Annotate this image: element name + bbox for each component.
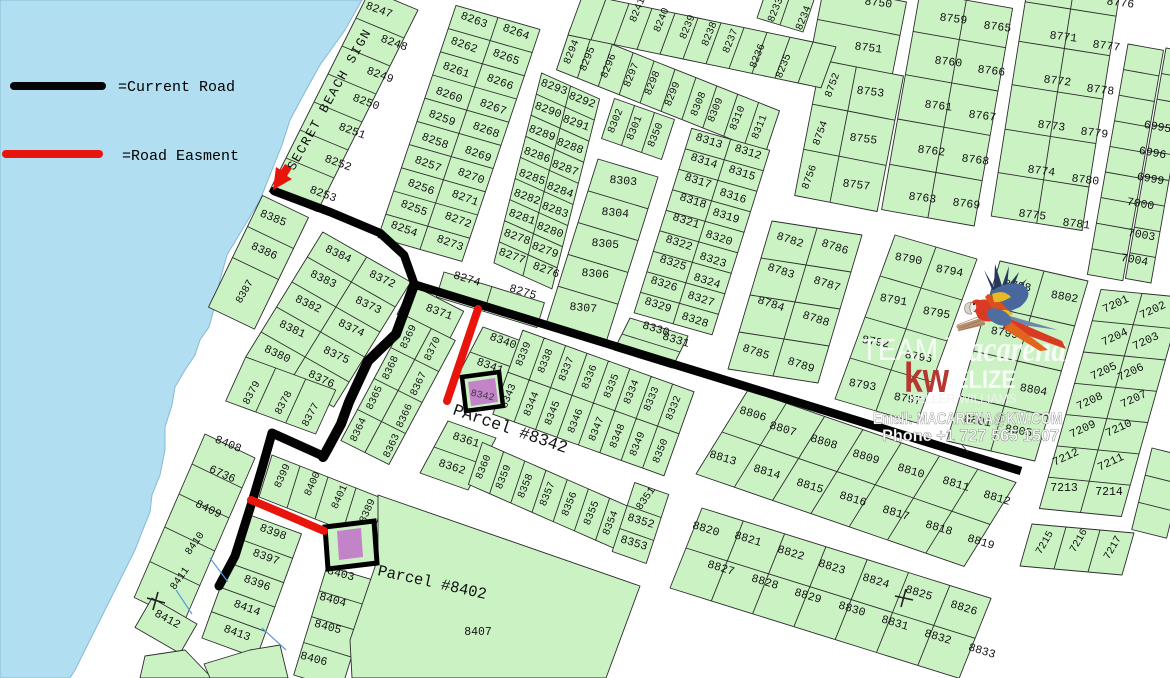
svg-text:7213: 7213 — [1050, 482, 1078, 495]
svg-text:7214: 7214 — [1095, 486, 1123, 499]
svg-text:8303: 8303 — [609, 174, 638, 189]
svg-text:8307: 8307 — [569, 301, 598, 316]
svg-text:Phone +1 727 565 1507: Phone +1 727 565 1507 — [882, 426, 1059, 445]
svg-text:=Road Easment: =Road Easment — [122, 148, 239, 165]
svg-text:=Current Road: =Current Road — [118, 79, 235, 96]
svg-text:8304: 8304 — [601, 206, 630, 221]
svg-text:KELLER WILLIAMS.: KELLER WILLIAMS. — [909, 391, 1020, 406]
svg-text:8407: 8407 — [464, 626, 492, 639]
svg-text:8306: 8306 — [581, 267, 610, 282]
svg-text:8305: 8305 — [591, 237, 620, 252]
svg-text:ELIZE: ELIZE — [954, 366, 1016, 394]
